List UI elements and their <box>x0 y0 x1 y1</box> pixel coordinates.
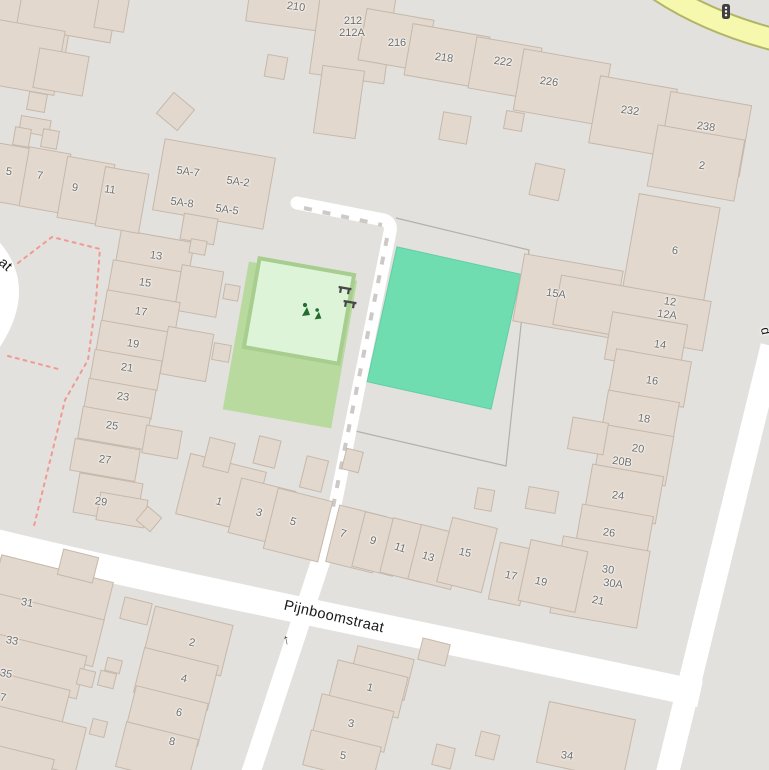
building <box>313 65 364 138</box>
building <box>264 54 288 79</box>
building <box>439 112 471 144</box>
building <box>474 488 494 512</box>
building <box>76 668 95 687</box>
building <box>13 127 32 148</box>
building <box>518 540 588 613</box>
building <box>189 239 207 256</box>
building <box>94 0 130 32</box>
playground-area <box>246 261 352 362</box>
building <box>525 487 558 514</box>
map-canvas[interactable]: ↑ <box>0 0 769 770</box>
building <box>97 670 116 688</box>
building <box>41 129 60 150</box>
map-root[interactable]: ↑ 210212212A2162182222262322382615A1212A… <box>0 0 769 770</box>
building <box>160 326 214 381</box>
building <box>529 163 565 201</box>
road-left-stub <box>0 248 8 342</box>
building <box>223 284 240 301</box>
building <box>89 718 107 737</box>
traffic-signals-icon <box>722 4 730 19</box>
building <box>504 111 525 132</box>
building <box>142 425 182 459</box>
building <box>174 265 223 318</box>
building <box>212 343 232 363</box>
building <box>33 48 89 96</box>
building <box>567 417 608 455</box>
building <box>27 92 48 113</box>
